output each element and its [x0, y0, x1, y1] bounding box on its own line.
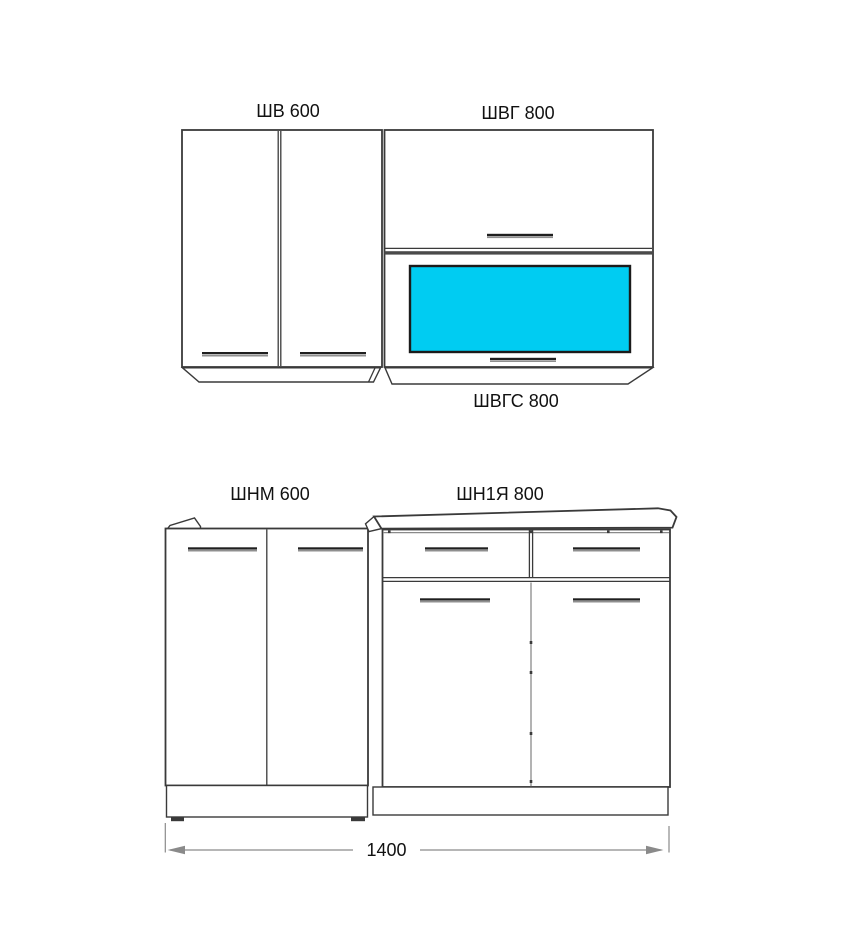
wall-cabinet-shv-600: [182, 130, 382, 382]
dimension-value: 1400: [366, 840, 406, 860]
right-door-handle: [298, 547, 363, 551]
cabinet-bottom-panel: [385, 368, 653, 384]
kitchen-cabinet-diagram: ШВ 600 ШВГ 800 ШВГС 800: [0, 0, 850, 947]
label-wall-cabinet-shv-600: ШВ 600: [256, 101, 320, 121]
wall-cabinets-group: ШВ 600 ШВГ 800 ШВГС 800: [182, 101, 653, 411]
cabinet-bottom-panel: [183, 368, 381, 382]
door-gap-mark: [530, 641, 533, 644]
plinth: [167, 786, 368, 818]
worktop: [374, 508, 677, 528]
left-door-handle: [420, 598, 490, 602]
label-wall-cabinet-shvgs-800: ШВГС 800: [473, 391, 558, 411]
label-base-cabinet-shnm-600: ШНМ 600: [230, 484, 310, 504]
arrow-right-icon: [646, 846, 664, 854]
hinge-mark: [660, 531, 663, 534]
plinth: [373, 787, 668, 815]
hinge-mark: [607, 531, 610, 534]
base-cabinets-group: ШНМ 600 ШН1Я 800: [166, 484, 677, 821]
door-gap-mark: [530, 732, 533, 735]
dimension-total-width: 1400: [165, 823, 669, 860]
right-drawer-handle: [573, 547, 640, 551]
left-door-handle: [188, 547, 257, 551]
right-door-handle: [573, 598, 640, 602]
wall-cabinet-shvg-shvgs-800: [385, 130, 654, 384]
base-cabinet-shn1ya-800: [366, 508, 677, 815]
arrow-left-icon: [168, 846, 186, 854]
foot-left: [171, 817, 184, 821]
base-cabinet-shnm-600: [166, 518, 369, 821]
cabinet-body: [182, 130, 382, 367]
door-gap-mark: [530, 780, 533, 783]
glass-door-panel: [410, 266, 630, 352]
foot-right: [351, 817, 365, 821]
cabinet-divider-band: [385, 251, 654, 254]
label-base-cabinet-shn1ya-800: ШН1Я 800: [456, 484, 544, 504]
kitchen-set-drawing: ШВ 600 ШВГ 800 ШВГС 800: [0, 0, 850, 947]
left-drawer-handle: [425, 547, 488, 551]
flip-up-door-handle: [487, 234, 553, 238]
label-wall-cabinet-shvg-800: ШВГ 800: [481, 103, 554, 123]
glass-door-handle: [490, 358, 556, 362]
cabinet-body: [383, 530, 671, 788]
door-gap-mark: [530, 671, 533, 674]
right-door-handle: [300, 352, 366, 357]
hinge-mark: [388, 531, 391, 534]
left-door-handle: [202, 352, 268, 357]
